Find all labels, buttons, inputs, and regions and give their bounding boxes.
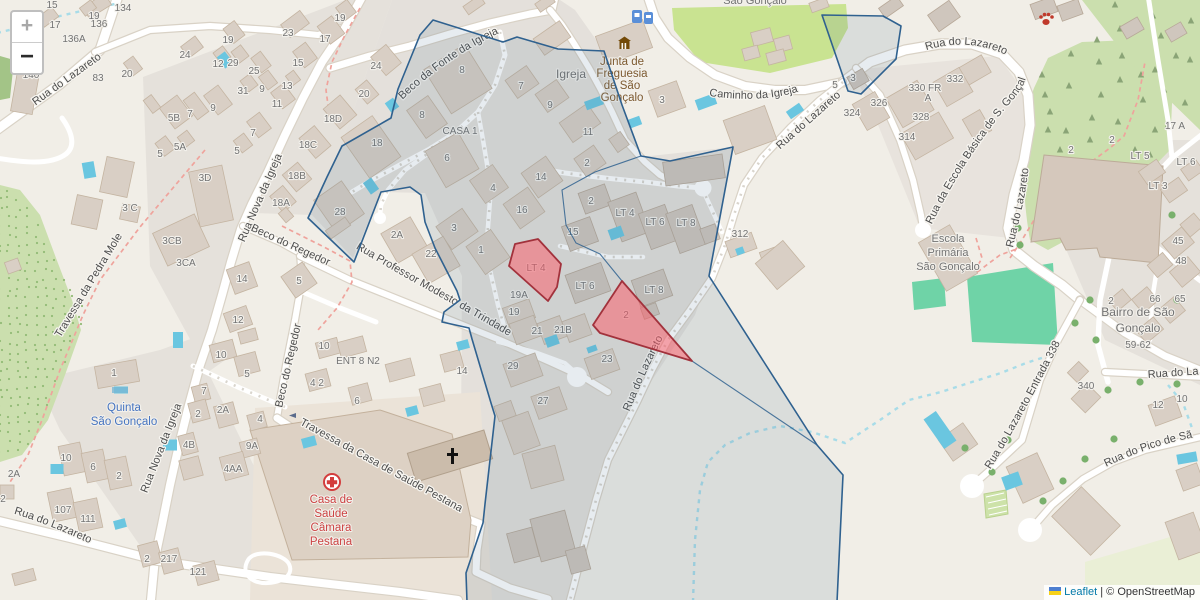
- svg-text:314: 314: [899, 132, 916, 143]
- svg-text:15: 15: [46, 0, 58, 11]
- svg-text:12: 12: [212, 59, 224, 70]
- svg-text:Casa de: Casa de: [310, 494, 353, 506]
- svg-text:7: 7: [250, 128, 256, 139]
- svg-text:328: 328: [913, 112, 930, 123]
- svg-text:14: 14: [456, 366, 468, 377]
- svg-text:1: 1: [111, 368, 117, 379]
- svg-text:19: 19: [222, 35, 234, 46]
- svg-text:Pestana: Pestana: [310, 536, 353, 548]
- svg-text:312: 312: [732, 229, 749, 240]
- svg-text:19: 19: [334, 13, 346, 24]
- svg-text:24: 24: [370, 61, 382, 72]
- svg-text:ENT 8 N2: ENT 8 N2: [336, 356, 380, 367]
- svg-text:2: 2: [1109, 135, 1115, 146]
- svg-text:A: A: [925, 93, 932, 104]
- svg-text:17 A: 17 A: [1165, 121, 1185, 132]
- svg-text:Saúde: Saúde: [314, 508, 347, 520]
- svg-text:121: 121: [190, 567, 207, 578]
- svg-text:2: 2: [195, 409, 201, 420]
- svg-text:4: 4: [257, 414, 263, 425]
- svg-text:2A: 2A: [217, 405, 230, 416]
- svg-text:10: 10: [318, 341, 330, 352]
- svg-text:Primária: Primária: [928, 247, 970, 259]
- svg-text:3CA: 3CA: [176, 258, 196, 269]
- svg-text:Gonçalo: Gonçalo: [1116, 321, 1161, 335]
- svg-text:9: 9: [259, 84, 265, 95]
- svg-text:2: 2: [0, 494, 6, 505]
- svg-text:20: 20: [121, 69, 133, 80]
- svg-text:2: 2: [116, 471, 122, 482]
- svg-text:18C: 18C: [299, 140, 317, 151]
- svg-text:66: 66: [1149, 294, 1161, 305]
- svg-text:2A: 2A: [391, 230, 404, 241]
- svg-text:4AA: 4AA: [224, 464, 243, 475]
- svg-text:48: 48: [1175, 256, 1187, 267]
- svg-text:24: 24: [179, 50, 191, 61]
- svg-text:10: 10: [215, 350, 227, 361]
- svg-text:Bairro de São: Bairro de São: [1101, 305, 1175, 319]
- svg-text:83: 83: [92, 73, 104, 84]
- svg-text:65: 65: [1174, 294, 1186, 305]
- svg-text:18B: 18B: [288, 171, 306, 182]
- svg-text:9: 9: [210, 103, 216, 114]
- svg-text:Escola: Escola: [931, 233, 965, 245]
- svg-text:2: 2: [1068, 145, 1074, 156]
- svg-text:111: 111: [80, 514, 96, 525]
- svg-text:12: 12: [232, 315, 244, 326]
- svg-text:10: 10: [1176, 394, 1188, 405]
- svg-text:59-62: 59-62: [1125, 340, 1151, 351]
- svg-text:4 2: 4 2: [310, 378, 324, 389]
- svg-text:3 C: 3 C: [122, 203, 138, 214]
- svg-text:11: 11: [272, 99, 283, 110]
- svg-text:18A: 18A: [272, 198, 290, 209]
- svg-text:10: 10: [60, 453, 72, 464]
- svg-text:14: 14: [236, 274, 248, 285]
- svg-text:Quinta: Quinta: [107, 402, 141, 414]
- svg-text:5: 5: [157, 149, 163, 160]
- svg-text:2: 2: [144, 554, 150, 565]
- svg-text:19: 19: [88, 11, 100, 22]
- svg-text:6: 6: [354, 396, 360, 407]
- svg-text:29: 29: [227, 58, 239, 69]
- svg-text:25: 25: [248, 66, 260, 77]
- svg-text:326: 326: [871, 98, 888, 109]
- svg-text:LT 6: LT 6: [1176, 157, 1196, 168]
- svg-text:5A: 5A: [174, 142, 187, 153]
- svg-text:2A: 2A: [8, 469, 21, 480]
- svg-text:LT 5: LT 5: [1130, 151, 1150, 162]
- svg-text:3D: 3D: [199, 173, 212, 184]
- svg-text:5: 5: [244, 369, 250, 380]
- svg-text:São Gonçalo: São Gonçalo: [916, 261, 980, 273]
- svg-text:9A: 9A: [246, 441, 259, 452]
- svg-text:13: 13: [281, 81, 293, 92]
- svg-text:45: 45: [1172, 236, 1184, 247]
- svg-text:17: 17: [49, 20, 61, 31]
- svg-text:217: 217: [161, 554, 178, 565]
- svg-text:136A: 136A: [62, 34, 86, 45]
- svg-text:São Gonçalo: São Gonçalo: [91, 416, 158, 428]
- svg-text:São Gonçalo: São Gonçalo: [723, 0, 787, 7]
- svg-text:7: 7: [201, 386, 207, 397]
- svg-text:324: 324: [844, 108, 861, 119]
- svg-text:18D: 18D: [324, 114, 342, 125]
- svg-text:340: 340: [1078, 381, 1095, 392]
- svg-text:LT 3: LT 3: [1148, 181, 1168, 192]
- svg-text:31: 31: [237, 86, 249, 97]
- svg-text:3CB: 3CB: [162, 236, 182, 247]
- svg-text:6: 6: [90, 462, 96, 473]
- svg-text:23: 23: [282, 28, 294, 39]
- svg-text:7: 7: [187, 109, 193, 120]
- svg-text:332: 332: [947, 74, 964, 85]
- svg-text:4B: 4B: [183, 440, 196, 451]
- svg-text:134: 134: [115, 3, 132, 14]
- svg-text:107: 107: [55, 505, 72, 516]
- svg-text:12: 12: [1152, 400, 1164, 411]
- svg-text:3: 3: [659, 95, 665, 106]
- svg-text:15: 15: [292, 58, 304, 69]
- svg-text:Câmara: Câmara: [311, 522, 353, 534]
- svg-text:5B: 5B: [168, 113, 181, 124]
- svg-text:22: 22: [425, 249, 437, 260]
- svg-text:5: 5: [234, 146, 240, 157]
- svg-text:17: 17: [319, 34, 331, 45]
- svg-text:5: 5: [296, 276, 302, 287]
- svg-text:20: 20: [358, 89, 370, 100]
